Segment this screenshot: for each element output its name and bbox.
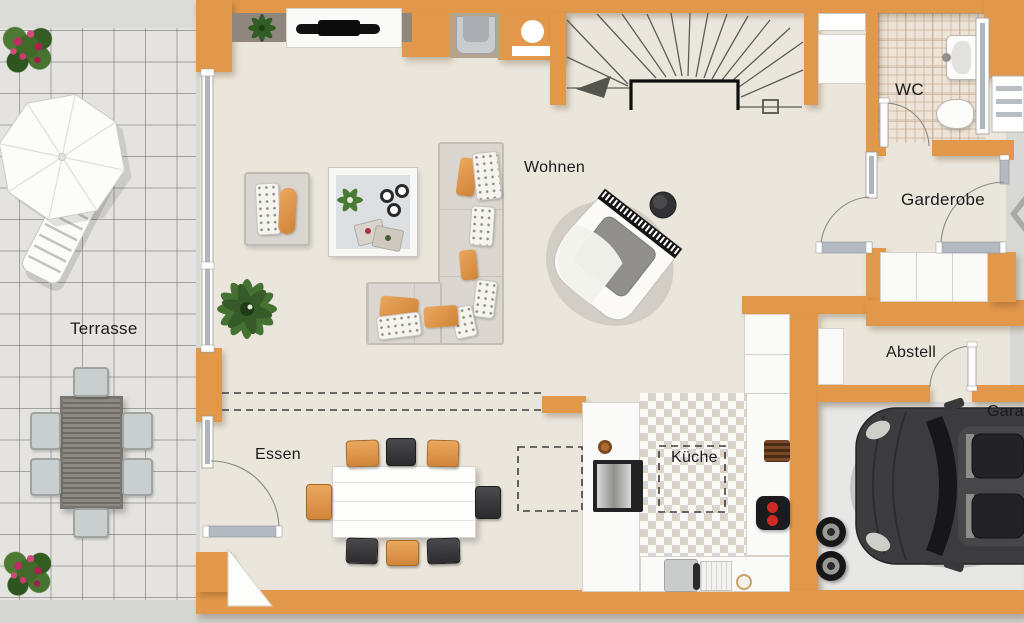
car-icon — [850, 397, 1024, 573]
room-label-essen: Essen — [255, 446, 301, 464]
plant-icon — [217, 279, 277, 339]
abstell-door — [930, 342, 977, 391]
room-label-abstell: Abstell — [886, 344, 936, 362]
open-door-leaf-icon — [228, 549, 272, 606]
room-label-kueche: Küche — [671, 449, 718, 467]
window-icon — [976, 18, 1024, 134]
stair-landing-edge — [631, 81, 738, 110]
room-label-wohnen: Wohnen — [524, 159, 585, 177]
plant-icon — [248, 14, 276, 42]
wc-door — [879, 98, 929, 147]
window-icon — [201, 69, 214, 352]
room-label-garage: Garage — [987, 403, 1024, 421]
stair-direction-arrow-icon — [576, 76, 611, 98]
room-label-wc: WC — [895, 80, 924, 100]
room-label-terrasse: Terrasse — [70, 319, 138, 339]
sun-umbrella-icon — [0, 94, 132, 226]
plan-linework — [0, 0, 1024, 623]
room-label-garderobe: Garderobe — [901, 190, 985, 210]
piano-stool-top — [653, 195, 667, 209]
table-decor — [337, 186, 408, 252]
garderobe-door-left — [816, 152, 877, 253]
terrace-door — [202, 416, 282, 537]
floor-plan: Terrasse Wohnen Essen Küche WC Garderobe… — [0, 0, 1024, 623]
